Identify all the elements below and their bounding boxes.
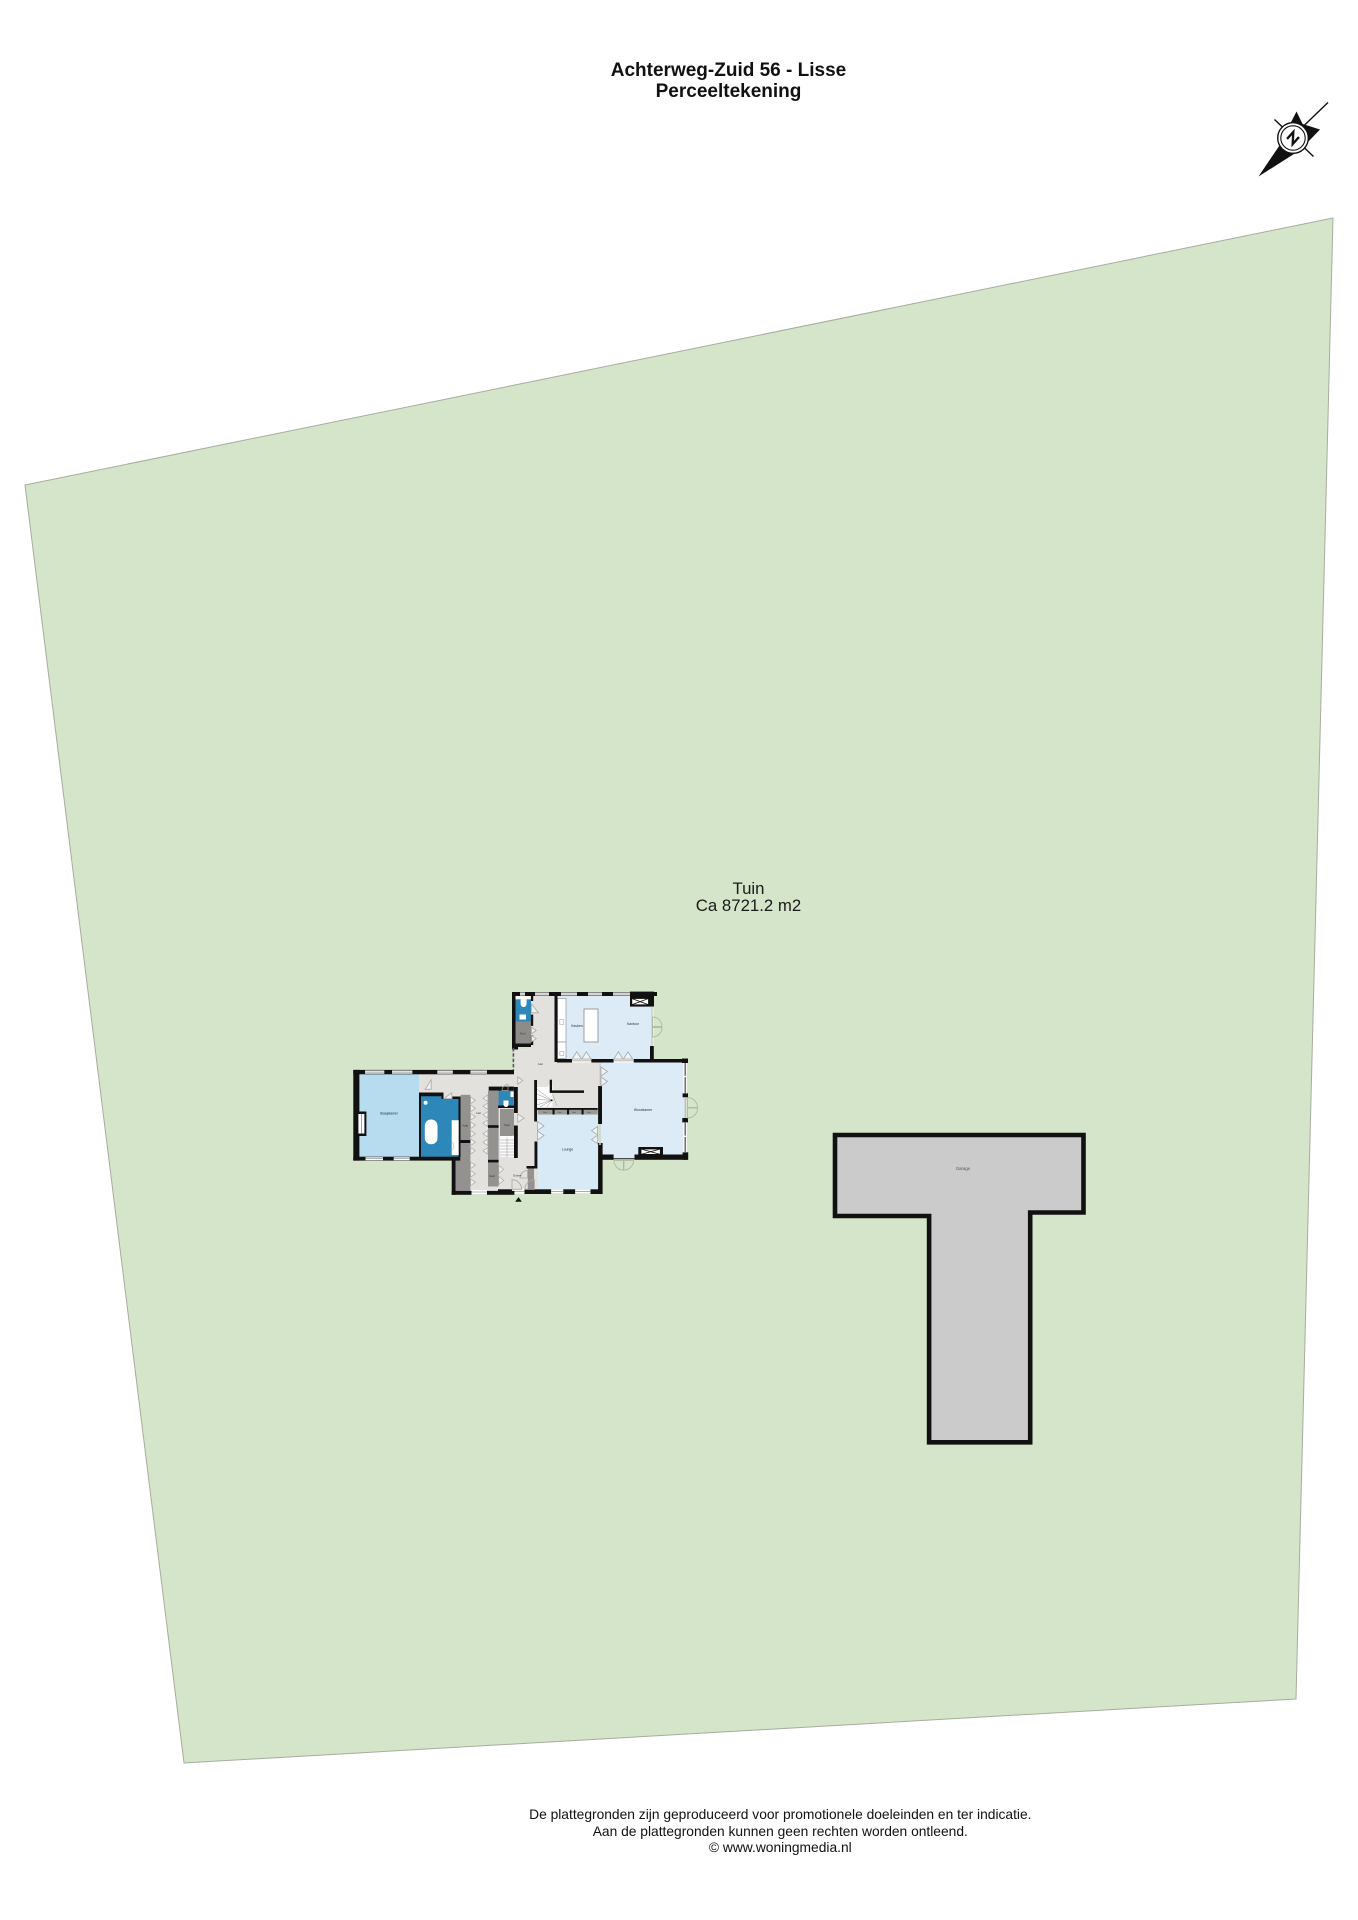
svg-text:Garage: Garage: [956, 1166, 971, 1171]
svg-text:Kast: Kast: [543, 1111, 547, 1114]
svg-text:Kantoor: Kantoor: [627, 1022, 640, 1026]
svg-text:Kast: Kast: [462, 1124, 468, 1128]
svg-text:Keuken: Keuken: [571, 1024, 583, 1028]
svg-text:Tech: Tech: [520, 1032, 526, 1036]
svg-text:Kast: Kast: [572, 1111, 576, 1114]
svg-text:Hal: Hal: [476, 1111, 481, 1115]
svg-text:Entree: Entree: [513, 1174, 522, 1178]
svg-text:Kast: Kast: [587, 1111, 591, 1114]
svg-text:Kast: Kast: [489, 1174, 495, 1178]
svg-text:Woonkamer: Woonkamer: [634, 1108, 653, 1112]
svg-text:Hal: Hal: [538, 1062, 543, 1066]
svg-text:Slaapkamer: Slaapkamer: [380, 1112, 399, 1116]
svg-text:Kast: Kast: [504, 1123, 510, 1127]
svg-text:Lounge: Lounge: [562, 1147, 573, 1151]
svg-text:Kast: Kast: [558, 1111, 562, 1114]
